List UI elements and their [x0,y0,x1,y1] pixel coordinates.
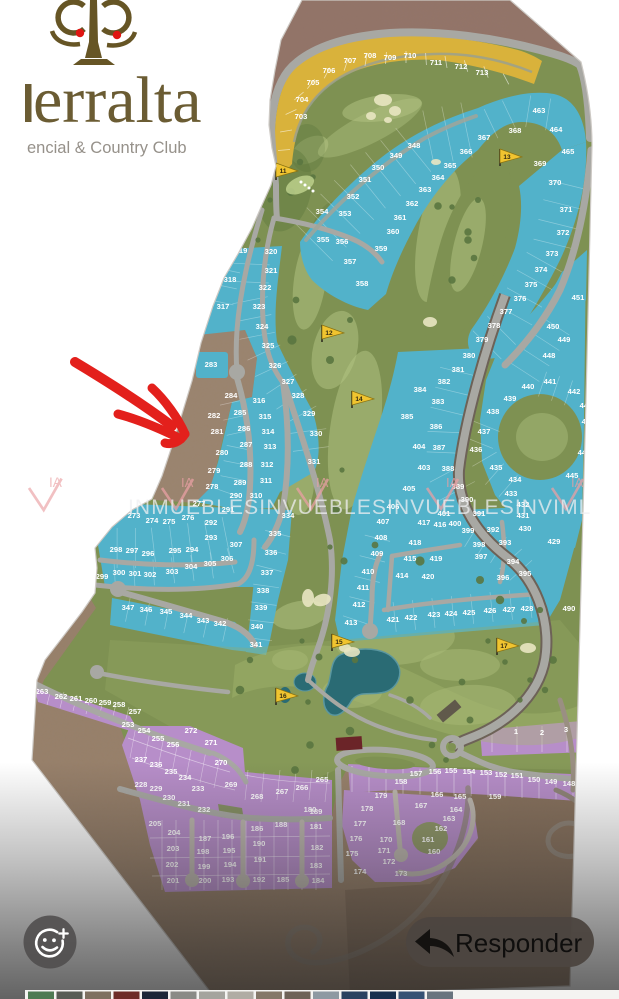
svg-text:373: 373 [546,249,559,258]
svg-text:378: 378 [488,321,501,330]
svg-text:379: 379 [476,335,489,344]
svg-text:710: 710 [404,51,417,60]
svg-text:258: 258 [113,700,126,709]
svg-text:IA: IA [316,475,329,490]
svg-text:439: 439 [504,394,517,403]
svg-text:437: 437 [478,427,491,436]
svg-text:IA: IA [181,475,194,490]
svg-text:372: 372 [557,228,570,237]
svg-text:707: 707 [344,56,357,65]
svg-text:315: 315 [259,412,272,421]
svg-text:353: 353 [339,209,352,218]
svg-text:encial & Country Club: encial & Country Club [27,139,187,157]
svg-text:262: 262 [55,692,68,701]
svg-text:398: 398 [473,540,486,549]
svg-text:366: 366 [460,147,473,156]
svg-text:316: 316 [253,396,266,405]
svg-text:260: 260 [85,696,98,705]
svg-text:359: 359 [375,244,388,253]
svg-text:253: 253 [122,720,135,729]
svg-text:418: 418 [409,538,422,547]
svg-text:361: 361 [394,213,407,222]
svg-text:328: 328 [292,391,305,400]
svg-text:708: 708 [364,51,377,60]
svg-text:321: 321 [265,266,278,275]
svg-text:368: 368 [509,126,522,135]
svg-text:255: 255 [152,734,165,743]
svg-text:299: 299 [96,572,109,581]
svg-text:415: 415 [404,554,417,563]
svg-text:15: 15 [335,639,343,646]
svg-text:314: 314 [262,427,275,436]
svg-text:IA: IA [571,475,584,490]
svg-text:348: 348 [408,141,421,150]
svg-text:12: 12 [325,330,333,337]
svg-text:313: 313 [264,442,277,451]
svg-text:331: 331 [308,457,321,466]
svg-text:355: 355 [317,235,330,244]
svg-text:381: 381 [452,365,465,374]
svg-text:425: 425 [463,608,476,617]
svg-text:417: 417 [418,518,431,527]
svg-text:399: 399 [462,526,475,535]
svg-text:Responder: Responder [455,928,583,958]
svg-text:337: 337 [261,568,274,577]
svg-text:322: 322 [259,283,272,292]
svg-text:438: 438 [487,407,500,416]
svg-text:713: 713 [476,68,489,77]
svg-text:340: 340 [251,622,264,631]
svg-text:383: 383 [432,397,445,406]
svg-text:369: 369 [534,159,547,168]
svg-text:erralta: erralta [33,64,202,137]
svg-text:336: 336 [265,548,278,557]
svg-text:338: 338 [257,586,270,595]
svg-text:296: 296 [142,549,155,558]
svg-text:335: 335 [269,529,282,538]
svg-text:259: 259 [99,698,112,707]
svg-text:464: 464 [550,125,563,134]
svg-text:704: 704 [296,95,309,104]
svg-text:354: 354 [316,207,329,216]
svg-text:705: 705 [307,78,320,87]
svg-text:254: 254 [138,726,151,735]
svg-text:317: 317 [217,302,230,311]
svg-text:712: 712 [455,62,468,71]
svg-text:463: 463 [533,106,546,115]
svg-text:325: 325 [262,341,275,350]
svg-text:256: 256 [167,740,180,749]
svg-text:490: 490 [563,604,576,613]
svg-text:287: 287 [240,440,253,449]
svg-text:285: 285 [234,408,247,417]
svg-text:352: 352 [347,192,360,201]
svg-text:412: 412 [353,600,366,609]
svg-text:365: 365 [444,161,457,170]
svg-text:INMUEBLESINVUEBLESINVUEBLESINV: INMUEBLESINVUEBLESINVUEBLESINVIML [128,496,591,519]
svg-text:297: 297 [126,546,139,555]
svg-text:357: 357 [344,257,357,266]
svg-text:16: 16 [279,693,287,700]
svg-text:339: 339 [255,603,268,612]
svg-text:367: 367 [478,133,491,142]
svg-text:343: 343 [197,616,210,625]
svg-text:345: 345 [160,607,173,616]
svg-text:377: 377 [500,307,513,316]
svg-text:347: 347 [122,603,135,612]
svg-text:281: 281 [211,427,224,436]
svg-text:3: 3 [564,725,568,734]
svg-text:306: 306 [221,554,234,563]
svg-text:465: 465 [562,147,575,156]
svg-text:436: 436 [470,445,483,454]
svg-text:293: 293 [205,533,218,542]
svg-text:329: 329 [303,409,316,418]
svg-text:342: 342 [214,619,227,628]
svg-text:703: 703 [295,112,308,121]
svg-text:392: 392 [487,525,500,534]
svg-text:17: 17 [500,643,508,650]
svg-text:2: 2 [540,728,544,737]
svg-text:351: 351 [359,175,372,184]
svg-text:300: 300 [113,568,126,577]
svg-text:350: 350 [372,163,385,172]
svg-text:326: 326 [269,361,282,370]
svg-text:414: 414 [396,571,409,580]
svg-text:421: 421 [387,615,400,624]
svg-text:356: 356 [336,237,349,246]
svg-text:304: 304 [185,562,198,571]
svg-text:272: 272 [185,726,198,735]
svg-text:448: 448 [543,351,556,360]
svg-text:394: 394 [507,557,520,566]
svg-text:307: 307 [230,540,243,549]
svg-text:286: 286 [238,424,251,433]
svg-text:393: 393 [499,538,512,547]
svg-text:385: 385 [401,412,414,421]
svg-text:IA: IA [49,475,63,490]
svg-text:279: 279 [208,466,221,475]
svg-text:330: 330 [310,429,323,438]
svg-text:376: 376 [514,294,527,303]
svg-text:435: 435 [490,463,503,472]
svg-text:422: 422 [405,613,418,622]
svg-text:711: 711 [430,58,443,67]
svg-text:413: 413 [345,618,358,627]
svg-text:312: 312 [261,460,274,469]
svg-text:289: 289 [234,478,247,487]
svg-text:440: 440 [522,382,535,391]
svg-text:292: 292 [205,518,218,527]
svg-text:323: 323 [253,302,266,311]
svg-text:284: 284 [225,391,238,400]
svg-text:411: 411 [357,583,370,592]
svg-text:426: 426 [484,606,497,615]
svg-text:397: 397 [475,552,488,561]
svg-text:344: 344 [180,611,193,620]
svg-text:295: 295 [169,546,182,555]
svg-text:427: 427 [503,605,516,614]
svg-text:449: 449 [558,335,571,344]
svg-text:282: 282 [208,411,221,420]
svg-text:271: 271 [205,738,218,747]
svg-text:423: 423 [428,610,441,619]
svg-text:428: 428 [521,604,534,613]
svg-text:288: 288 [240,460,253,469]
svg-text:424: 424 [445,609,458,618]
svg-text:403: 403 [418,463,431,472]
svg-text:416: 416 [434,520,447,529]
svg-text:261: 261 [70,694,83,703]
svg-text:303: 303 [166,567,179,576]
svg-text:346: 346 [140,605,153,614]
svg-text:11: 11 [280,168,287,175]
svg-text:311: 311 [260,476,273,485]
svg-text:362: 362 [406,199,419,208]
svg-text:327: 327 [282,377,295,386]
svg-text:430: 430 [519,524,532,533]
svg-text:324: 324 [256,322,269,331]
svg-text:386: 386 [430,422,443,431]
svg-text:360: 360 [387,227,400,236]
svg-text:419: 419 [430,554,443,563]
svg-text:363: 363 [419,185,432,194]
svg-text:375: 375 [525,280,538,289]
svg-text:14: 14 [355,396,363,403]
svg-text:434: 434 [509,475,522,484]
svg-text:341: 341 [250,640,263,649]
svg-text:302: 302 [144,570,157,579]
svg-text:450: 450 [547,322,560,331]
svg-text:429: 429 [548,537,561,546]
svg-text:278: 278 [206,482,219,491]
svg-text:320: 320 [265,247,278,256]
svg-text:301: 301 [129,569,142,578]
svg-text:283: 283 [205,360,218,369]
svg-text:374: 374 [535,265,548,274]
svg-text:441: 441 [544,377,557,386]
svg-text:370: 370 [549,178,562,187]
svg-text:408: 408 [375,533,388,542]
svg-text:358: 358 [356,279,369,288]
svg-text:706: 706 [323,66,336,75]
svg-text:298: 298 [110,545,123,554]
svg-text:396: 396 [497,573,510,582]
svg-text:404: 404 [413,442,426,451]
svg-text:13: 13 [503,154,511,161]
svg-text:387: 387 [433,443,446,452]
svg-text:709: 709 [384,53,397,62]
svg-text:280: 280 [216,448,229,457]
svg-text:263: 263 [36,687,49,696]
svg-text:349: 349 [390,151,403,160]
svg-text:400: 400 [449,519,462,528]
svg-text:382: 382 [438,377,451,386]
svg-text:305: 305 [204,559,217,568]
svg-text:371: 371 [560,205,573,214]
svg-text:257: 257 [129,707,142,716]
svg-text:405: 405 [403,484,416,493]
svg-text:388: 388 [442,464,455,473]
svg-text:442: 442 [568,387,581,396]
svg-text:409: 409 [371,549,384,558]
svg-text:451: 451 [572,293,585,302]
svg-text:294: 294 [186,545,199,554]
svg-text:395: 395 [519,569,532,578]
svg-text:364: 364 [432,173,445,182]
svg-text:380: 380 [463,351,476,360]
svg-text:IA: IA [446,475,459,490]
svg-text:384: 384 [414,385,427,394]
svg-text:410: 410 [362,567,375,576]
svg-text:420: 420 [422,572,435,581]
